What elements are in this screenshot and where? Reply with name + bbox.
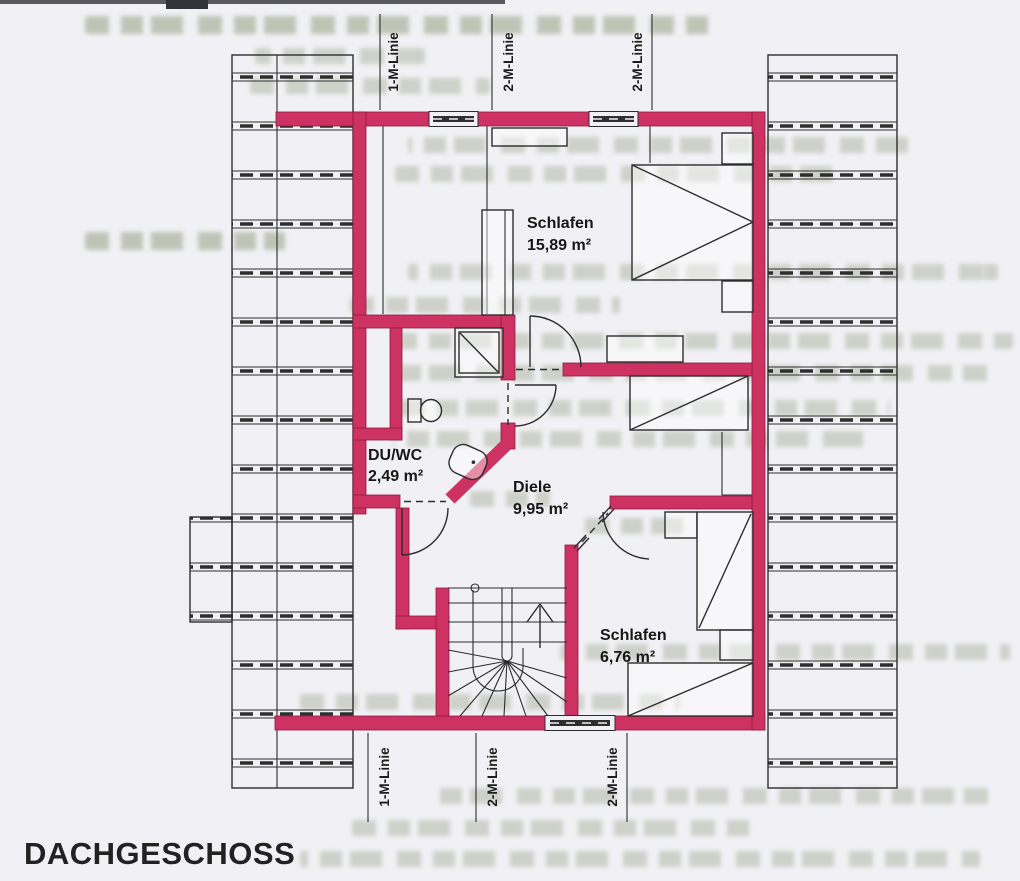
toilet [408,399,442,422]
shower [455,328,503,377]
door-schlafen-main [516,316,581,370]
measure-label-top-1m: 1-M-Linie [386,32,401,92]
washbasin [445,441,490,483]
room-label-schlafen-small: Schlafen [600,627,667,644]
roof-hatch-left [190,55,353,788]
nightstand [722,281,753,312]
single-bed-alcove [630,376,748,430]
room-area-diele: 9,95 m² [513,501,568,518]
roof-hatch-right [768,55,897,788]
measure-label-bottom-2m-b: 2-M-Linie [605,747,620,807]
door-schlafen-small [574,506,649,559]
room-area-duwc: 2,49 m² [368,468,423,485]
measure-label-top-2m-b: 2-M-Linie [630,32,645,92]
room-area-schlafen-small: 6,76 m² [600,649,655,666]
wardrobe [482,210,513,315]
door-duwc [508,383,556,426]
dresser [607,336,683,362]
nightstand [722,133,753,164]
room-label-diele: Diele [513,479,551,496]
window-top-right [589,112,638,127]
room-labels: Schlafen 15,89 m² DU/WC 2,49 m² Diele 9,… [368,215,667,666]
interior-height-lines [383,126,650,314]
measure-label-bottom-1m: 1-M-Linie [377,747,392,807]
window-bottom [545,716,615,731]
double-bed [632,165,753,280]
room-area-schlafen-main: 15,89 m² [527,237,591,254]
floor-plan-drawing: 1-M-Linie 2-M-Linie 2-M-Linie 1-M-Linie … [0,0,1020,881]
scanned-floor-plan-page: 1-M-Linie 2-M-Linie 2-M-Linie 1-M-Linie … [0,0,1020,881]
stair-up-arrow [527,604,553,648]
room-label-schlafen-main: Schlafen [527,215,594,232]
staircase [448,584,567,716]
measure-label-bottom-2m-a: 2-M-Linie [485,747,500,807]
single-bed-horizontal [628,663,753,716]
measure-label-top-2m-a: 2-M-Linie [501,32,516,92]
sideboard [492,128,567,146]
winder-treads [448,650,567,716]
nightstand [665,512,697,538]
single-bed-vertical [697,512,753,630]
nightstand [720,630,753,660]
closet-niche [722,432,752,495]
walking-line [473,590,523,691]
window-top-left [429,112,478,127]
page-title: DACHGESCHOSS [24,836,295,872]
room-label-duwc: DU/WC [368,447,423,464]
